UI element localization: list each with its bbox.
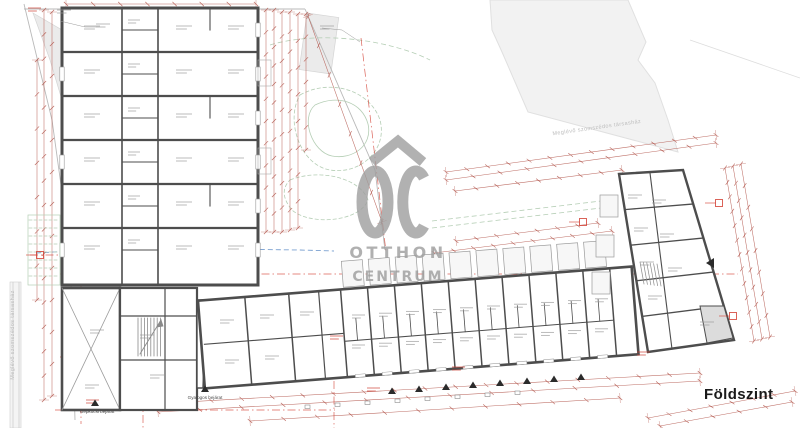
- floor-plan-canvas: OTTHON CENTRUM Meglévő szomszédos társas…: [0, 0, 800, 428]
- garage-block: [62, 288, 206, 410]
- watermark-roof-icon: [372, 141, 423, 162]
- vehicle-entrance-label: Gépkocsi bejárat: [80, 409, 115, 414]
- neighbor-wedge-shape: [33, 13, 62, 100]
- watermark-letter-c: [403, 171, 424, 233]
- watermark-line2: CENTRUM: [352, 269, 443, 285]
- neighbor-small-shape: [299, 13, 339, 74]
- pedestrian-entrance-label: Gyalogos bejárat: [188, 395, 223, 400]
- neighbor-left-label: Meglévő szomszédos társasház: [10, 290, 16, 379]
- floor-title: Földszint: [704, 386, 773, 403]
- street-line: [690, 40, 800, 78]
- left-wing: [62, 8, 258, 285]
- watermark-line1: OTTHON: [349, 243, 446, 262]
